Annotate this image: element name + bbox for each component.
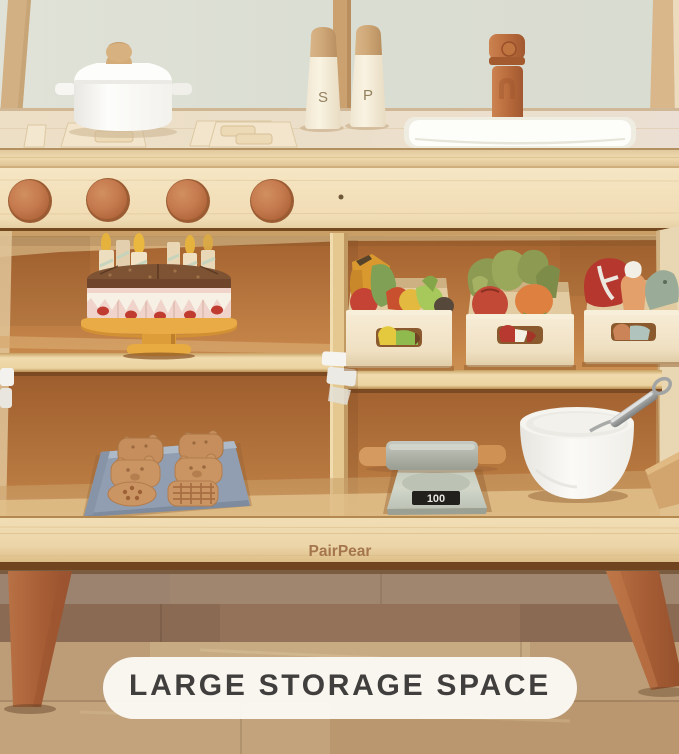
svg-text:LARGE STORAGE SPACE: LARGE STORAGE SPACE — [129, 669, 551, 702]
svg-text:PairPear: PairPear — [309, 543, 372, 560]
svg-text:P: P — [363, 87, 373, 104]
svg-text:S: S — [318, 89, 328, 106]
svg-text:100: 100 — [427, 493, 445, 505]
